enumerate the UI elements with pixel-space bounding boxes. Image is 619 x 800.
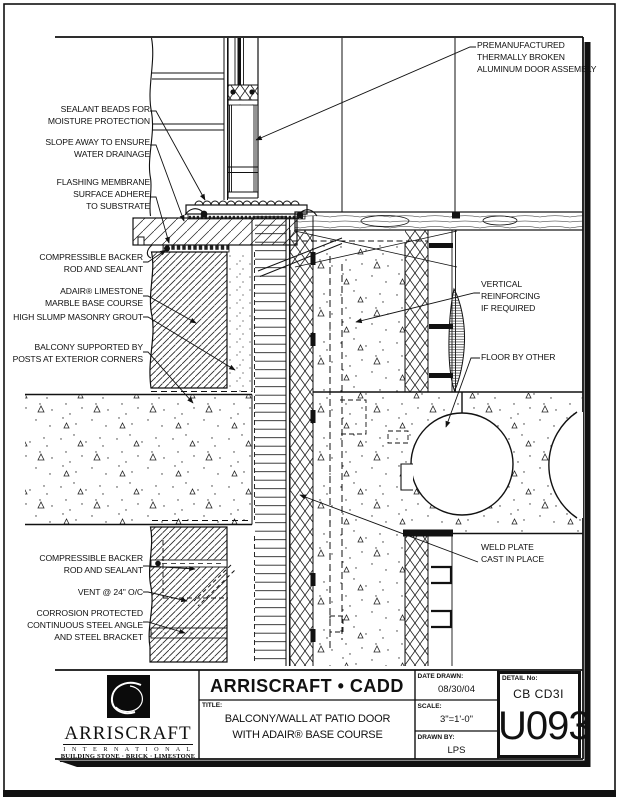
drawn-by-label: DRAWN BY: [418, 734, 455, 741]
label-adair-limestone: ADAIR® LIMESTONE MARBLE BASE COURSE [45, 286, 143, 310]
label-premanufactured-door: PREMANUFACTURED THERMALLY BROKEN ALUMINU… [477, 40, 596, 76]
balcony-slab [25, 395, 252, 525]
logo-subtitle: I N T E R N A T I O N A L [57, 746, 199, 753]
arriscraft-logo-icon [107, 675, 150, 718]
label-sealant-beads: SEALANT BEADS FOR MOISTURE PROTECTION [48, 104, 150, 128]
wall-reference-lines [342, 38, 455, 212]
title-label: TITLE: [202, 702, 222, 709]
door-assembly [228, 38, 259, 198]
label-floor-by-other: FLOOR BY OTHER [481, 352, 555, 364]
label-backer-lower: COMPRESSIBLE BACKER ROD AND SEALANT [39, 553, 143, 577]
cadd-header: ARRISCRAFT • CADD [200, 673, 414, 699]
drawing-sheet: SEALANT BEADS FOR MOISTURE PROTECTION SL… [0, 0, 619, 800]
label-weld-plate: WELD PLATE CAST IN PLACE [481, 542, 544, 566]
logo-tagline: BUILDING STONE · BRICK · LIMESTONE [60, 753, 196, 763]
scale-label: SCALE: [418, 703, 442, 710]
label-backer-upper: COMPRESSIBLE BACKER ROD AND SEALANT [39, 252, 143, 276]
label-vertical-reinforcing: VERTICAL REINFORCING IF REQUIRED [481, 279, 540, 315]
drawing-title-line1: BALCONY/WALL AT PATIO DOOR [200, 713, 415, 725]
date-drawn-value: 08/30/04 [415, 684, 498, 695]
label-slope-away: SLOPE AWAY TO ENSURE WATER DRAINAGE [45, 137, 150, 161]
label-balcony-posts: BALCONY SUPPORTED BY POSTS AT EXTERIOR C… [13, 342, 143, 366]
detail-no-label: DETAIL No: [502, 675, 538, 682]
floor-strip [449, 289, 465, 391]
label-corrosion-steel: CORROSION PROTECTED CONTINUOUS STEEL ANG… [27, 608, 143, 644]
date-drawn-label: DATE DRAWN: [418, 673, 464, 680]
label-flashing-membrane: FLASHING MEMBRANE SURFACE ADHERE TO SUBS… [57, 177, 150, 213]
drawn-by-value: LPS [415, 745, 498, 756]
scale-value: 3"=1'-0" [415, 714, 498, 725]
label-masonry-grout: HIGH SLUMP MASONRY GROUT [13, 312, 143, 324]
wall-above-left [149, 38, 227, 216]
drawing-title-line2: WITH ADAIR® BASE COURSE [200, 729, 415, 741]
detail-number: U093 [498, 698, 579, 754]
mortar-joint-upper [163, 245, 229, 252]
label-vent: VENT @ 24" O/C [78, 587, 143, 599]
insulation-inner [290, 216, 316, 666]
logo-name: ARRISCRAFT [57, 723, 199, 745]
concrete-wall [317, 243, 408, 666]
lower-limestone-block [149, 527, 234, 662]
